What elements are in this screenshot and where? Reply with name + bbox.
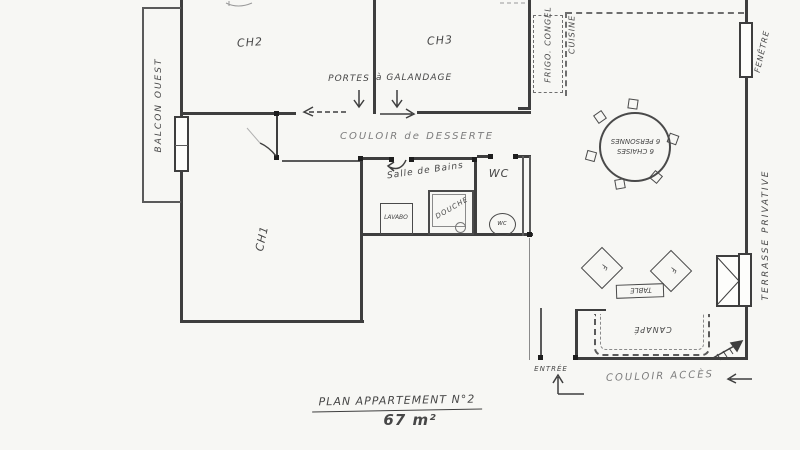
ch1-door-sketch-line xyxy=(247,128,260,143)
annotation-layer xyxy=(0,0,800,450)
corner-arrow-shaft xyxy=(713,345,736,358)
bath-door-arc xyxy=(388,160,406,171)
floor-plan-sheet: FRIGO. CONGEL CUISINE FENÊTRE TERRASSE P… xyxy=(0,0,800,450)
arrow-down-icon xyxy=(354,90,364,107)
arrow-down-icon xyxy=(392,90,402,107)
entrance-arrow-icon xyxy=(553,375,584,394)
cutoff-note-mark xyxy=(226,1,252,6)
access-arrow-icon xyxy=(728,374,752,383)
terrace-door-diagonals xyxy=(717,257,739,305)
slide-right-arrow-icon xyxy=(380,109,414,118)
ch1-door-arc xyxy=(260,143,276,156)
corner-arrow-head xyxy=(731,341,742,351)
